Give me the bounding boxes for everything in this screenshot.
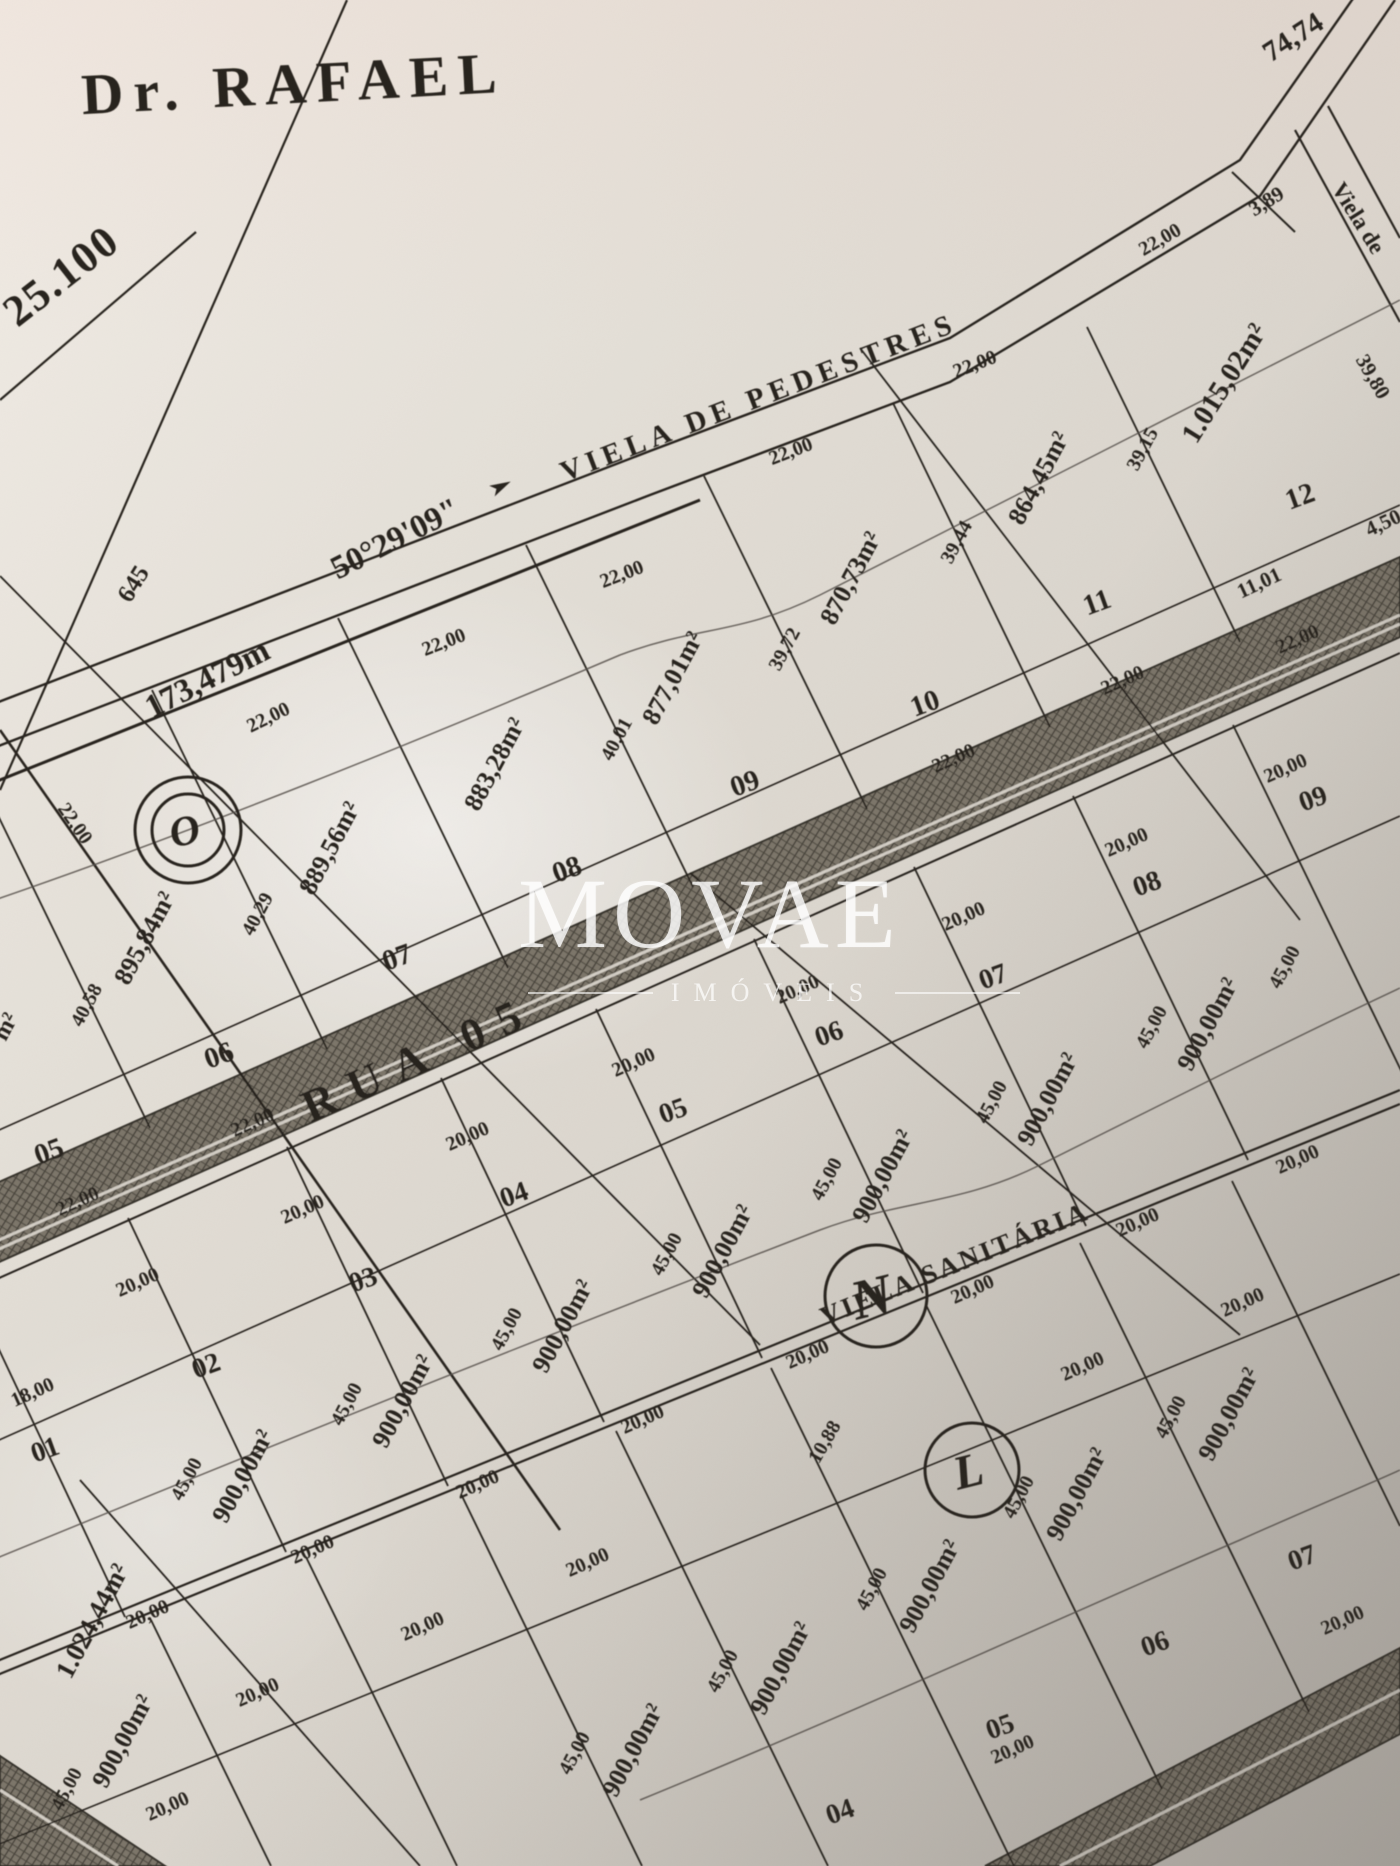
photo-vignette bbox=[0, 0, 1400, 1866]
plat-map-canvas: ONLDr. RAFAEL25.100VIELA DE PEDESTRESRUA… bbox=[0, 0, 1400, 1866]
plat-map-photo: ONLDr. RAFAEL25.100VIELA DE PEDESTRESRUA… bbox=[0, 0, 1400, 1866]
